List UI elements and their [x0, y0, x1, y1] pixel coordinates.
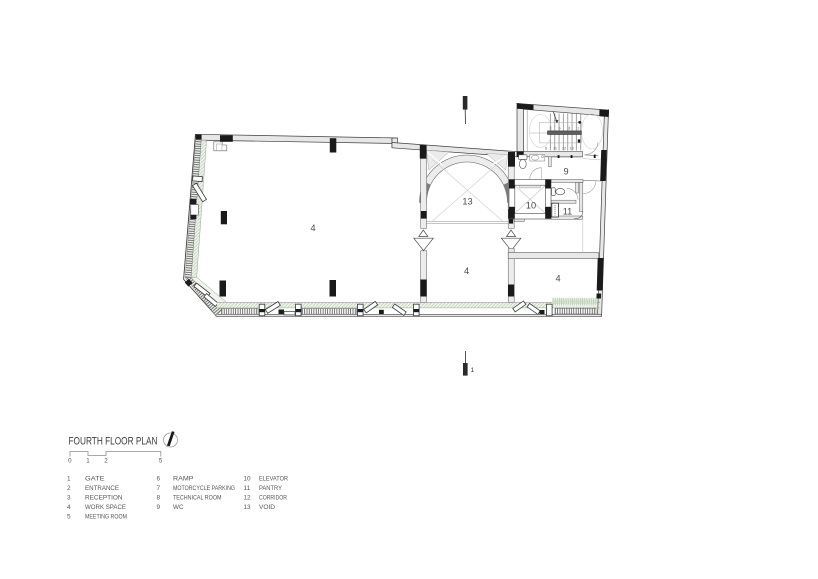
svg-text:18: 18 — [569, 146, 573, 151]
svg-text:7: 7 — [549, 126, 551, 131]
svg-text:4: 4 — [555, 274, 560, 284]
svg-text:1: 1 — [471, 367, 475, 374]
svg-text:0: 0 — [68, 457, 72, 464]
svg-text:13: 13 — [244, 504, 252, 511]
svg-text:RAMP: RAMP — [173, 476, 194, 483]
svg-text:2: 2 — [67, 485, 71, 492]
svg-text:8: 8 — [157, 495, 161, 502]
svg-text:13: 13 — [462, 197, 472, 207]
svg-text:11: 11 — [563, 207, 573, 217]
svg-text:MOTORCYCLE PARKING: MOTORCYCLE PARKING — [173, 485, 235, 492]
svg-text:PANTRY: PANTRY — [259, 485, 283, 492]
svg-text:11: 11 — [553, 146, 557, 151]
svg-text:WC: WC — [173, 504, 184, 511]
svg-text:4: 4 — [67, 504, 71, 511]
svg-text:4: 4 — [310, 223, 315, 233]
svg-text:9: 9 — [157, 504, 161, 511]
svg-text:12: 12 — [562, 146, 566, 151]
svg-text:MEETING ROOM: MEETING ROOM — [85, 514, 127, 521]
svg-text:1: 1 — [577, 126, 579, 131]
svg-text:WORK SPACE: WORK SPACE — [85, 504, 126, 511]
svg-text:ENTRANCE: ENTRANCE — [85, 485, 119, 492]
svg-text:VOID: VOID — [259, 504, 275, 511]
svg-text:TECHNICAL ROOM: TECHNICAL ROOM — [173, 495, 222, 502]
svg-text:6: 6 — [558, 126, 560, 131]
svg-text:2: 2 — [104, 457, 108, 464]
svg-text:5: 5 — [67, 514, 71, 521]
svg-text:12: 12 — [244, 495, 252, 502]
svg-text:3: 3 — [568, 126, 570, 131]
svg-text:8: 8 — [545, 146, 547, 151]
svg-text:11: 11 — [244, 485, 251, 492]
svg-text:1: 1 — [67, 476, 71, 483]
svg-text:ELEVATOR: ELEVATOR — [259, 476, 288, 483]
svg-text:10: 10 — [244, 476, 252, 483]
svg-text:5: 5 — [159, 457, 163, 464]
svg-text:GATE: GATE — [85, 476, 105, 483]
svg-text:CORRIDOR: CORRIDOR — [259, 495, 287, 502]
svg-text:10: 10 — [526, 201, 536, 211]
svg-text:7: 7 — [157, 485, 161, 492]
svg-text:3: 3 — [67, 495, 71, 502]
svg-text:9: 9 — [563, 167, 568, 177]
svg-text:6: 6 — [157, 476, 161, 483]
svg-text:RECEPTION: RECEPTION — [85, 495, 123, 502]
svg-text:FOURTH FLOOR PLAN: FOURTH FLOOR PLAN — [69, 435, 158, 447]
svg-text:4: 4 — [464, 266, 469, 276]
svg-text:1: 1 — [86, 457, 90, 464]
